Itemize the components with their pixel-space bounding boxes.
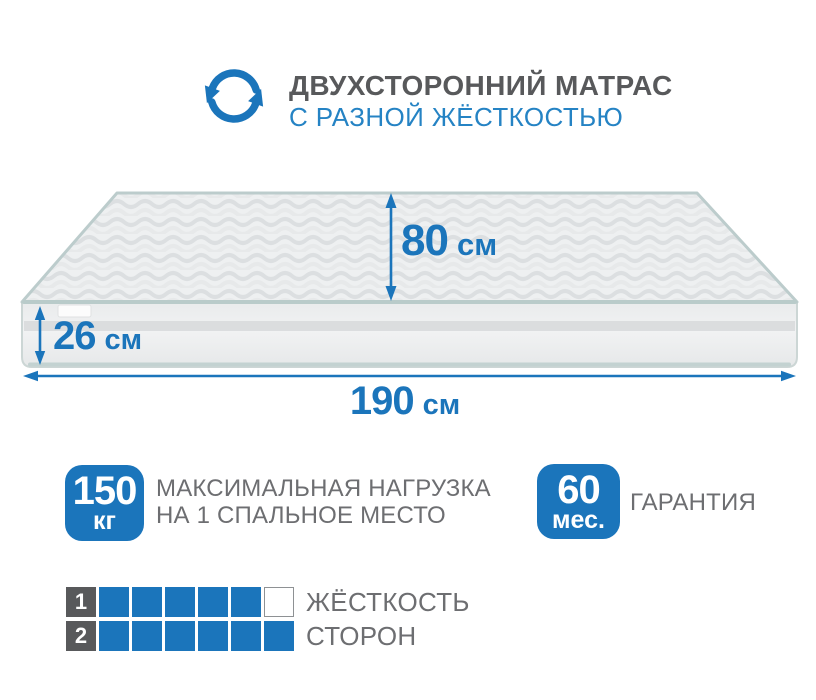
mattress-infographic: ДВУХСТОРОННИЙ МАТРАС С РАЗНОЙ ЖЁСТКОСТЬЮ: [0, 0, 816, 700]
firmness-cell-filled: [99, 621, 129, 651]
height-value: 26: [53, 314, 96, 358]
firmness-cell-filled: [198, 587, 228, 617]
firmness-scale: 1 ЖЁСТКОСТЬ 2 СТОРОН: [66, 587, 470, 655]
page-title: ДВУХСТОРОННИЙ МАТРАС: [289, 70, 673, 102]
height-unit: см: [105, 324, 143, 356]
length-unit: см: [423, 389, 461, 421]
firmness-cell-empty: [264, 587, 294, 617]
page-subtitle: С РАЗНОЙ ЖЁСТКОСТЬЮ: [289, 102, 623, 133]
firmness-cell-filled: [198, 621, 228, 651]
side1-number: 1: [66, 587, 96, 617]
max-load-label: МАКСИМАЛЬНАЯ НАГРУЗКА НА 1 СПАЛЬНОЕ МЕСТ…: [156, 475, 491, 529]
warranty-label: ГАРАНТИЯ: [630, 489, 756, 516]
depth-unit: см: [457, 227, 497, 262]
max-load-label-line1: МАКСИМАЛЬНАЯ НАГРУЗКА: [156, 475, 491, 502]
firmness-row-side1: 1 ЖЁСТКОСТЬ: [66, 587, 470, 617]
firmness-cell-filled: [132, 587, 162, 617]
firmness-cell-filled: [264, 621, 294, 651]
max-load-unit: кг: [93, 509, 116, 533]
warranty-badge: 60 мес.: [537, 464, 620, 539]
firmness-caption-line1: ЖЁСТКОСТЬ: [306, 587, 470, 617]
firmness-cell-filled: [132, 621, 162, 651]
length-value: 190: [350, 379, 414, 423]
firmness-cell-filled: [231, 621, 261, 651]
max-load-label-line2: НА 1 СПАЛЬНОЕ МЕСТО: [156, 502, 491, 529]
height-dimension-label: 26см: [53, 314, 142, 359]
warranty-value: 60: [557, 472, 600, 508]
depth-value: 80: [401, 216, 448, 265]
side1-cells: [99, 587, 294, 617]
firmness-cell-filled: [165, 621, 195, 651]
firmness-cell-filled: [165, 587, 195, 617]
firmness-cell-filled: [99, 587, 129, 617]
max-load-value: 150: [73, 473, 137, 509]
firmness-row-side2: 2 СТОРОН: [66, 621, 470, 651]
side2-cells: [99, 621, 294, 651]
depth-dimension-label: 80см: [401, 216, 497, 266]
firmness-caption-line2: СТОРОН: [306, 621, 416, 651]
length-dimension-label: 190см: [260, 379, 550, 424]
max-load-badge: 150 кг: [65, 465, 144, 541]
rotate-arrows-icon: [202, 63, 266, 129]
side2-number: 2: [66, 621, 96, 651]
firmness-cell-filled: [231, 587, 261, 617]
warranty-unit: мес.: [552, 508, 605, 532]
